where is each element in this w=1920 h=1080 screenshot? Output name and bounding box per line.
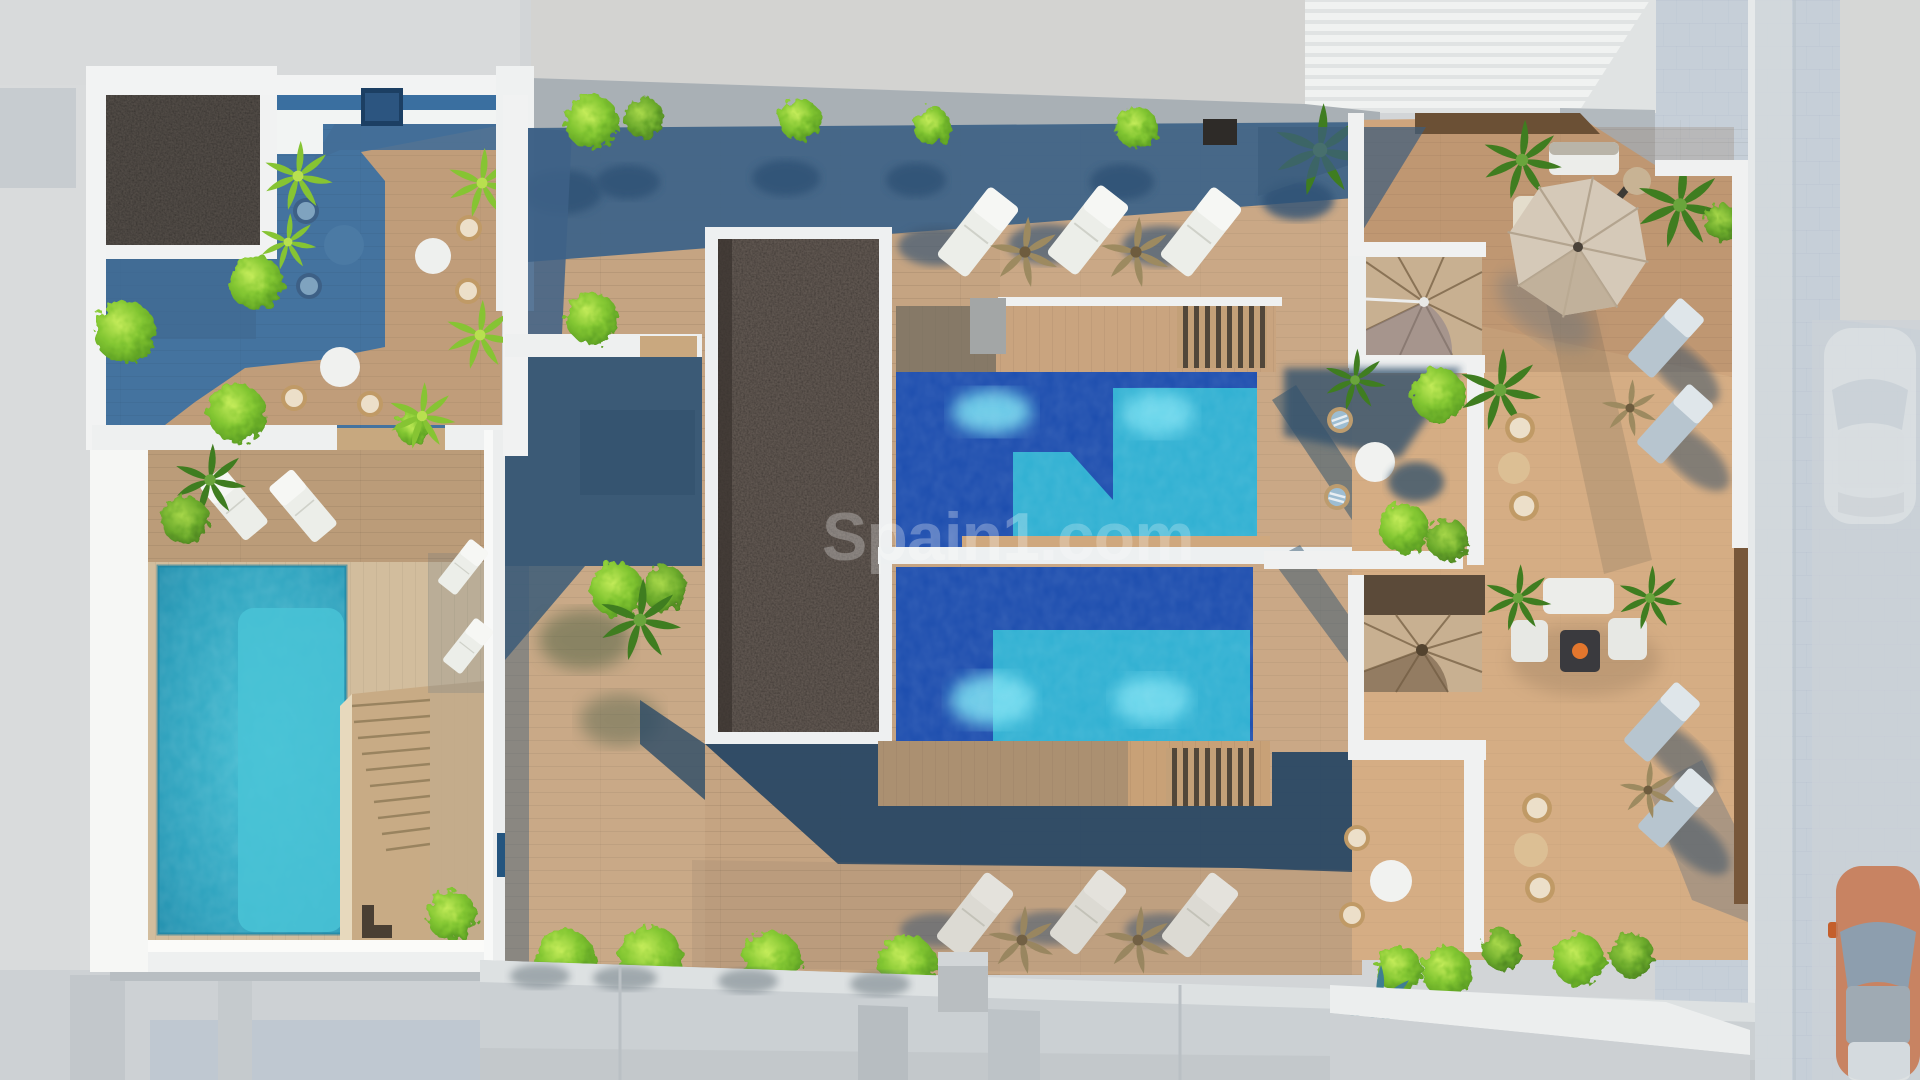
svg-text:Spain1.com: Spain1.com	[822, 499, 1194, 575]
